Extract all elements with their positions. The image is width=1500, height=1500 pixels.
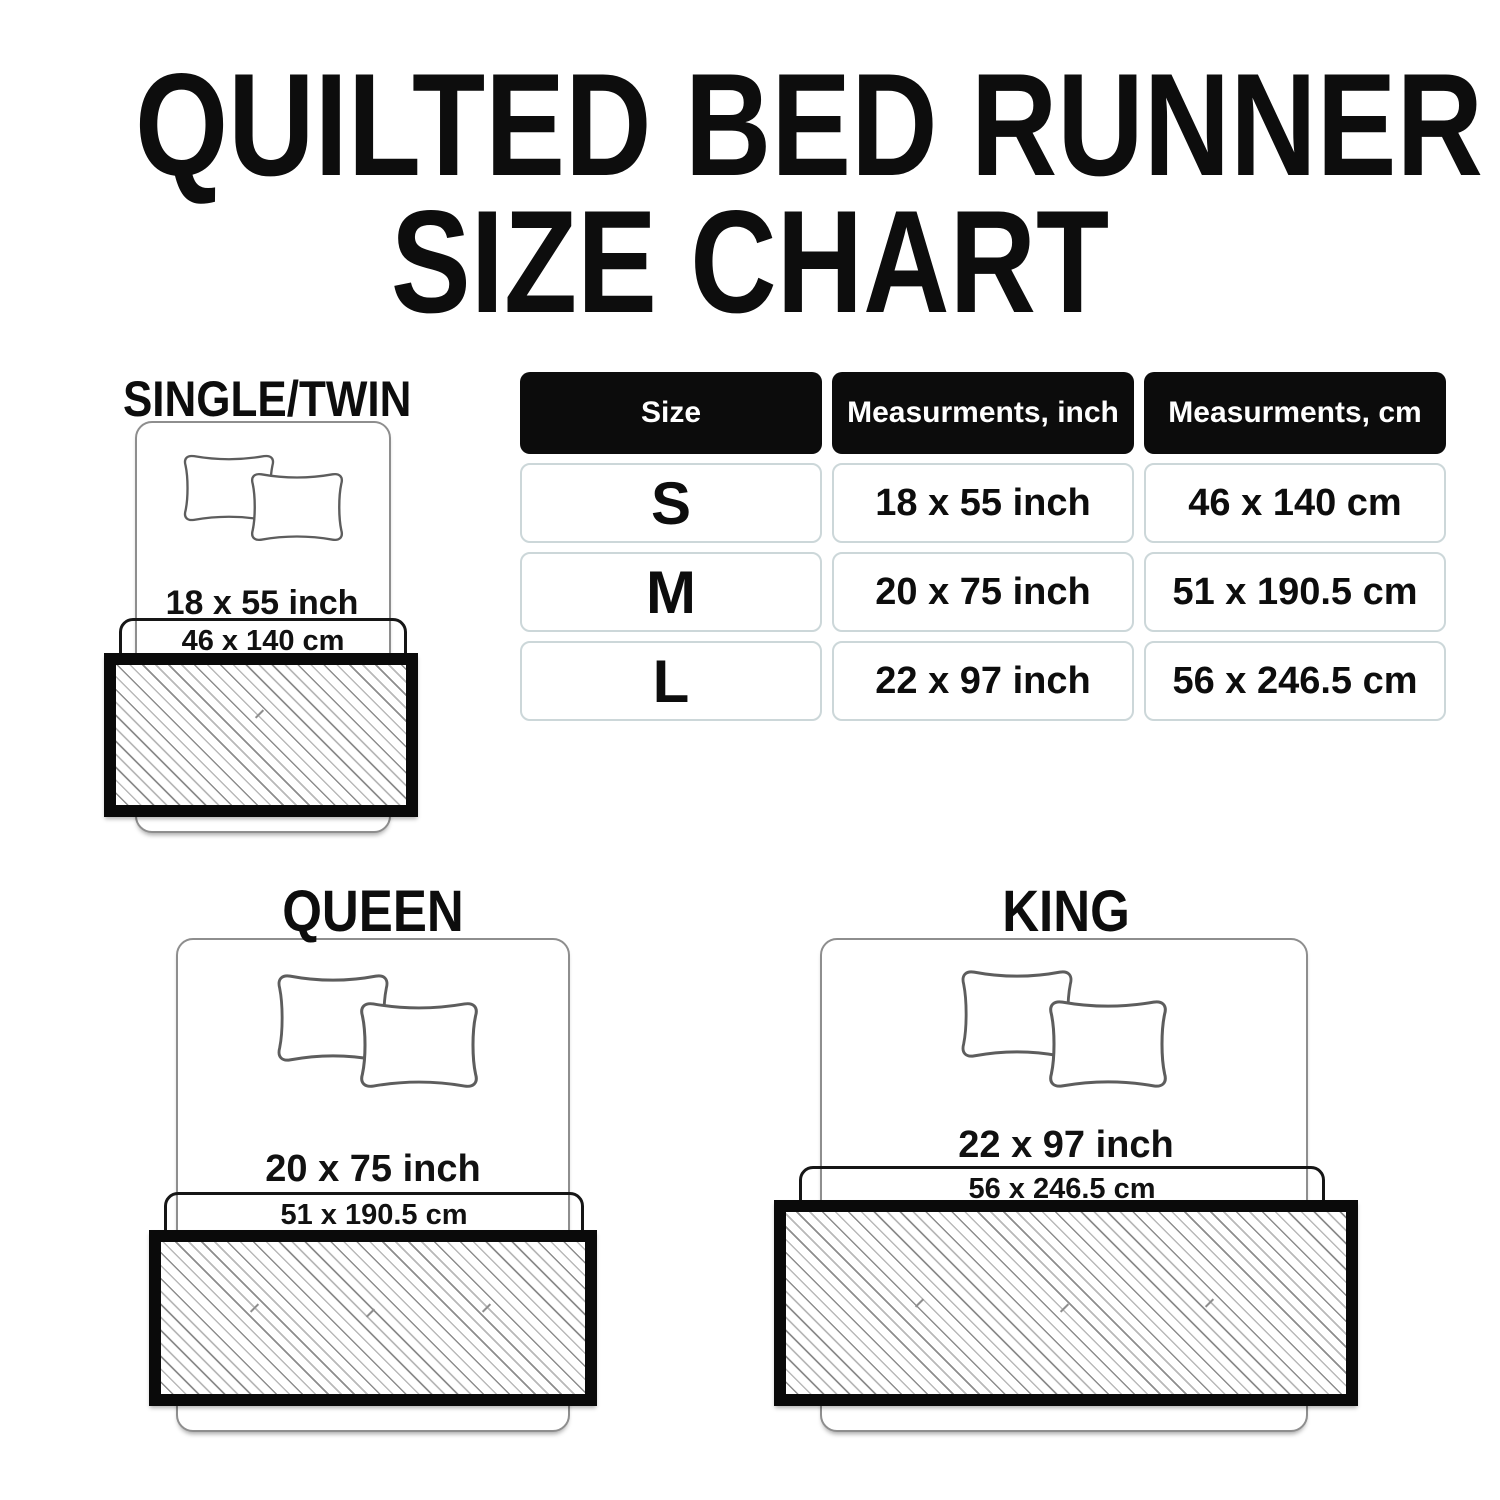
page-title-line2: SIZE CHART: [135, 193, 1365, 330]
cell-cm-s: 46 x 140 cm: [1144, 463, 1446, 543]
runner-size-cm-queen: 51 x 190.5 cm: [167, 1199, 581, 1232]
diagram-queen: QUEEN 20 x 75 inch 51 x 190.5 cm: [149, 872, 597, 1432]
page-title-line1: QUILTED BED RUNNER: [135, 56, 1365, 193]
cell-inch-s: 18 x 55 inch: [832, 463, 1134, 543]
runner-size-inch-king: 22 x 97 inch: [774, 1124, 1358, 1167]
cell-inch-l: 22 x 97 inch: [832, 641, 1134, 721]
diagram-king: KING 22 x 97 inch 56 x 246.5 cm: [774, 872, 1358, 1432]
cell-cm-l: 56 x 246.5 cm: [1144, 641, 1446, 721]
col-header-size: Size: [520, 372, 822, 454]
runner-swatch-king: [774, 1200, 1358, 1406]
cell-size-m: M: [520, 552, 822, 632]
diagram-queen-label: QUEEN: [176, 878, 570, 945]
diagram-single-twin: SINGLE/TWIN 18 x 55 inch 46 x 140 cm: [104, 368, 420, 834]
col-header-inch: Measurments, inch: [832, 372, 1134, 454]
cell-inch-m: 20 x 75 inch: [832, 552, 1134, 632]
size-table: Size Measurments, inch Measurments, cm S…: [520, 372, 1446, 721]
pillow-icon: [350, 996, 488, 1094]
runner-swatch-queen: [149, 1230, 597, 1406]
size-chart-page: QUILTED BED RUNNER SIZE CHART Size Measu…: [0, 0, 1500, 1500]
col-header-cm: Measurments, cm: [1144, 372, 1446, 454]
runner-size-inch-single: 18 x 55 inch: [104, 584, 420, 623]
pillow-icon: [1039, 994, 1177, 1094]
cell-size-l: L: [520, 641, 822, 721]
runner-size-inch-queen: 20 x 75 inch: [149, 1148, 597, 1191]
page-title: QUILTED BED RUNNER SIZE CHART: [135, 56, 1365, 330]
cell-size-s: S: [520, 463, 822, 543]
diagram-single-label: SINGLE/TWIN: [123, 370, 401, 428]
pillow-icon: [243, 468, 351, 546]
diagram-king-label: KING: [809, 878, 1323, 945]
runner-swatch-single: [104, 653, 418, 817]
cell-cm-m: 51 x 190.5 cm: [1144, 552, 1446, 632]
